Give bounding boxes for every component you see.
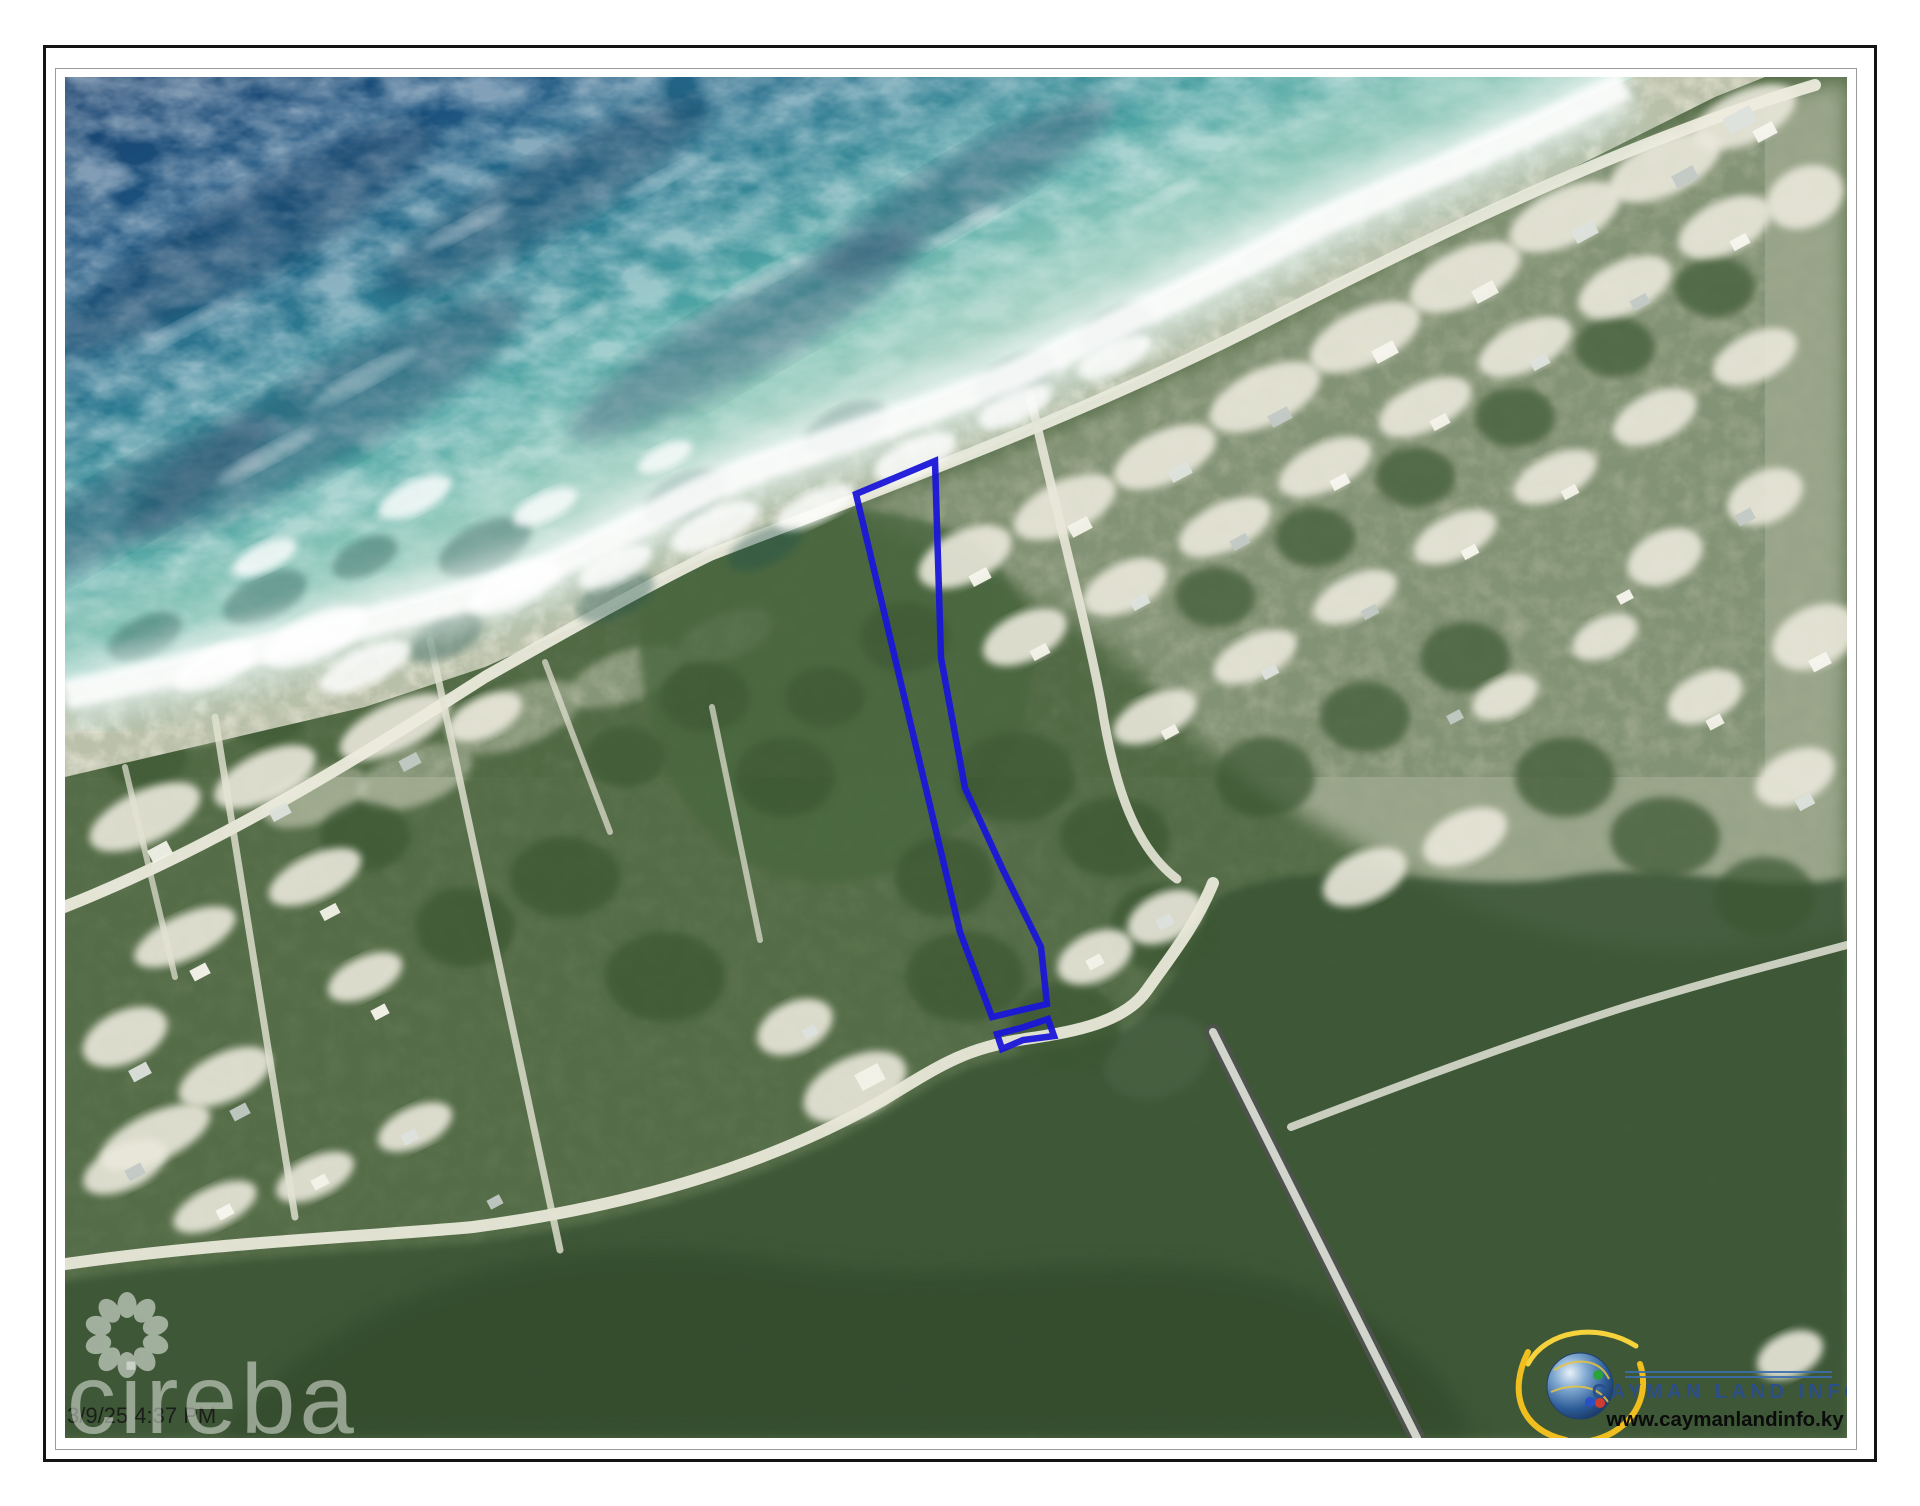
tree-clump	[735, 737, 835, 817]
flower-petal-icon	[118, 1292, 137, 1318]
tree-clump	[585, 727, 665, 787]
tree-clump	[1215, 737, 1315, 817]
tree-clump	[785, 667, 865, 727]
cireba-watermark: cireba	[67, 1344, 358, 1438]
tree-clump	[1060, 797, 1170, 877]
tree-clump	[1610, 797, 1720, 877]
tree-clump	[660, 662, 750, 732]
tree-clump	[605, 932, 725, 1022]
logo-title: CAYMAN LAND INFO	[1592, 1381, 1847, 1403]
tree-clump	[1575, 317, 1655, 377]
page: 3/9/25 4:37 PM cireba CAYMAN LAND INFO	[0, 0, 1920, 1506]
tree-clump	[1675, 257, 1755, 317]
aerial-photo: 3/9/25 4:37 PM cireba CAYMAN LAND INFO	[65, 77, 1847, 1438]
tree-clump	[1175, 567, 1255, 627]
tree-clump	[1275, 507, 1355, 567]
tree-clump	[510, 837, 620, 917]
tree-clump	[1515, 737, 1615, 817]
tree-clump	[1375, 447, 1455, 507]
logo-website: www.caymanlandinfo.ky	[1605, 1408, 1844, 1431]
tree-clump	[1320, 682, 1410, 752]
tree-clump	[1715, 857, 1815, 937]
globe-dot-green	[1593, 1370, 1603, 1380]
tree-clump	[1475, 387, 1555, 447]
inner-frame: 3/9/25 4:37 PM cireba CAYMAN LAND INFO	[55, 68, 1857, 1450]
outer-frame: 3/9/25 4:37 PM cireba CAYMAN LAND INFO	[43, 45, 1877, 1462]
